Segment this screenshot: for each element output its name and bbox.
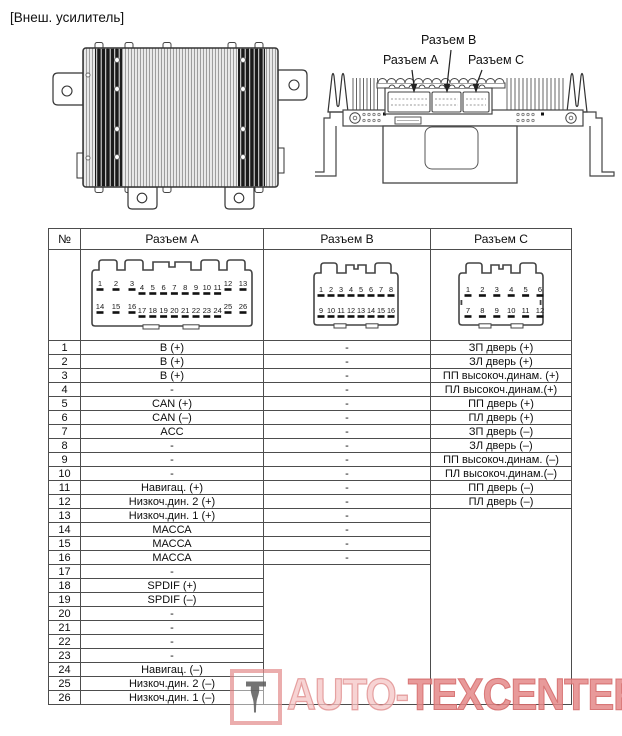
pin-c-cell: ПП дверь (+) — [431, 397, 572, 411]
header-number: № — [49, 229, 81, 250]
pin-number-cell: 7 — [49, 425, 81, 439]
svg-text:2: 2 — [329, 285, 333, 294]
pin-number-cell: 19 — [49, 593, 81, 607]
svg-text:12: 12 — [224, 279, 232, 288]
pin-b-cell: - — [264, 537, 431, 551]
svg-text:3: 3 — [130, 279, 134, 288]
svg-text:9: 9 — [495, 306, 499, 315]
pin-c-cell: ЗЛ дверь (–) — [431, 439, 572, 453]
svg-text:24: 24 — [213, 306, 221, 315]
pin-number-cell: 17 — [49, 565, 81, 579]
header-connector-a: Разъем A — [81, 229, 264, 250]
svg-text:4: 4 — [509, 285, 513, 294]
svg-text:18: 18 — [149, 306, 157, 315]
pin-number-cell: 1 — [49, 341, 81, 355]
amplifier-front-view-drawing — [44, 40, 314, 222]
svg-text:12: 12 — [347, 306, 355, 315]
header-connector-b: Разъем B — [264, 229, 431, 250]
pin-a-cell: - — [81, 565, 264, 579]
svg-text:2: 2 — [114, 279, 118, 288]
svg-text:11: 11 — [214, 283, 222, 292]
table-row: 4--ПЛ высокоч.динам.(+) — [49, 383, 572, 397]
pin-b-cell: - — [264, 523, 431, 537]
connector-a-label: Разъем A — [383, 53, 438, 67]
svg-text:23: 23 — [203, 306, 211, 315]
svg-text:20: 20 — [170, 306, 178, 315]
svg-text:1: 1 — [466, 285, 470, 294]
pin-a-cell: SPDIF (–) — [81, 593, 264, 607]
page: [Внеш. усилитель] — [0, 0, 622, 736]
pin-b-cell: - — [264, 341, 431, 355]
svg-text:6: 6 — [538, 285, 542, 294]
svg-text:5: 5 — [523, 285, 527, 294]
pin-a-cell: Навигац. (–) — [81, 663, 264, 677]
pin-number-cell: 13 — [49, 509, 81, 523]
pin-number-cell: 9 — [49, 453, 81, 467]
connector-b-pin-diagram: 12345678910111213141516 — [264, 250, 431, 341]
table-row: 9--ПП высокоч.динам. (–) — [49, 453, 572, 467]
pin-b-empty-cell — [264, 565, 431, 705]
pin-a-cell: - — [81, 607, 264, 621]
svg-text:8: 8 — [480, 306, 484, 315]
svg-text:10: 10 — [327, 306, 335, 315]
pin-a-cell: Низкоч.дин. 1 (–) — [81, 691, 264, 705]
pin-c-cell: ПЛ высокоч.динам.(+) — [431, 383, 572, 397]
pin-a-cell: SPDIF (+) — [81, 579, 264, 593]
table-header-row: № Разъем A Разъем B Разъем C — [49, 229, 572, 250]
svg-text:19: 19 — [159, 306, 167, 315]
pin-number-cell: 21 — [49, 621, 81, 635]
table-row: 2B (+)-ЗЛ дверь (+) — [49, 355, 572, 369]
pin-number-cell: 5 — [49, 397, 81, 411]
pin-c-cell: ЗЛ дверь (+) — [431, 355, 572, 369]
connector-c-pin-diagram: 123456789101112 — [431, 250, 572, 341]
pin-number-cell: 25 — [49, 677, 81, 691]
pin-a-cell: Навигац. (+) — [81, 481, 264, 495]
table-row: 5CAN (+)-ПП дверь (+) — [49, 397, 572, 411]
page-title: [Внеш. усилитель] — [10, 10, 124, 25]
pin-number-cell: 22 — [49, 635, 81, 649]
pin-number-cell: 16 — [49, 551, 81, 565]
pin-b-cell: - — [264, 425, 431, 439]
pin-number-cell: 14 — [49, 523, 81, 537]
pin-number-cell: 4 — [49, 383, 81, 397]
pin-b-cell: - — [264, 383, 431, 397]
pin-b-cell: - — [264, 439, 431, 453]
pin-a-cell: - — [81, 649, 264, 663]
svg-text:22: 22 — [192, 306, 200, 315]
svg-text:14: 14 — [367, 306, 375, 315]
svg-text:7: 7 — [379, 285, 383, 294]
pinout-table: № Разъем A Разъем B Разъем C 12345678910… — [48, 228, 572, 705]
pin-b-cell: - — [264, 397, 431, 411]
pin-b-cell: - — [264, 369, 431, 383]
pin-number-cell: 15 — [49, 537, 81, 551]
pin-a-cell: - — [81, 439, 264, 453]
svg-text:13: 13 — [239, 279, 247, 288]
table-row: 8--ЗЛ дверь (–) — [49, 439, 572, 453]
table-row: 13Низкоч.дин. 1 (+)- — [49, 509, 572, 523]
svg-text:5: 5 — [151, 283, 155, 292]
pin-b-cell: - — [264, 495, 431, 509]
connector-a-pin-diagram: 1234567891011121314151617181920212223242… — [81, 250, 264, 341]
pin-a-cell: Низкоч.дин. 2 (–) — [81, 677, 264, 691]
svg-text:16: 16 — [387, 306, 395, 315]
pin-number-cell: 20 — [49, 607, 81, 621]
pin-number-cell: 3 — [49, 369, 81, 383]
pin-a-cell: - — [81, 635, 264, 649]
svg-text:3: 3 — [339, 285, 343, 294]
pin-b-cell: - — [264, 481, 431, 495]
svg-text:10: 10 — [507, 306, 515, 315]
empty-cell — [49, 250, 81, 341]
svg-text:1: 1 — [98, 279, 102, 288]
pin-b-cell: - — [264, 355, 431, 369]
pin-number-cell: 6 — [49, 411, 81, 425]
pin-a-cell: - — [81, 467, 264, 481]
connector-diagram-row: 1234567891011121314151617181920212223242… — [49, 250, 572, 341]
pin-b-cell: - — [264, 467, 431, 481]
pin-a-cell: МАССА — [81, 551, 264, 565]
svg-text:8: 8 — [183, 283, 187, 292]
pin-number-cell: 2 — [49, 355, 81, 369]
pin-a-cell: - — [81, 383, 264, 397]
svg-text:10: 10 — [203, 283, 211, 292]
pin-c-cell: ЗП дверь (–) — [431, 425, 572, 439]
pin-b-cell: - — [264, 453, 431, 467]
pin-c-cell: ПЛ дверь (+) — [431, 411, 572, 425]
table-row: 10--ПЛ высокоч.динам.(–) — [49, 467, 572, 481]
svg-text:1: 1 — [319, 285, 323, 294]
svg-text:5: 5 — [359, 285, 363, 294]
pin-c-cell: ПЛ дверь (–) — [431, 495, 572, 509]
pin-a-cell: B (+) — [81, 341, 264, 355]
pin-b-cell: - — [264, 551, 431, 565]
svg-text:16: 16 — [128, 302, 136, 311]
pin-number-cell: 18 — [49, 579, 81, 593]
table-row: 12Низкоч.дин. 2 (+)-ПЛ дверь (–) — [49, 495, 572, 509]
svg-text:12: 12 — [536, 306, 544, 315]
pin-a-cell: - — [81, 621, 264, 635]
svg-text:7: 7 — [466, 306, 470, 315]
pin-c-cell: ПП высокоч.динам. (–) — [431, 453, 572, 467]
pin-a-cell: - — [81, 453, 264, 467]
svg-text:4: 4 — [140, 283, 144, 292]
svg-text:6: 6 — [369, 285, 373, 294]
pin-a-cell: Низкоч.дин. 1 (+) — [81, 509, 264, 523]
pin-c-cell: ПЛ высокоч.динам.(–) — [431, 467, 572, 481]
connector-c-shell: 123456789101112 — [451, 258, 551, 330]
svg-text:7: 7 — [172, 283, 176, 292]
svg-text:9: 9 — [319, 306, 323, 315]
pin-number-cell: 12 — [49, 495, 81, 509]
connector-b-shell: 12345678910111213141516 — [306, 258, 406, 330]
svg-text:15: 15 — [377, 306, 385, 315]
connector-b-label: Разъем B — [421, 33, 476, 47]
pin-a-cell: CAN (–) — [81, 411, 264, 425]
table-row: 3B (+)-ПП высокоч.динам. (+) — [49, 369, 572, 383]
svg-text:21: 21 — [181, 306, 189, 315]
pin-c-cell: ЗП дверь (+) — [431, 341, 572, 355]
svg-text:8: 8 — [389, 285, 393, 294]
pin-a-cell: B (+) — [81, 355, 264, 369]
svg-text:13: 13 — [357, 306, 365, 315]
pin-number-cell: 11 — [49, 481, 81, 495]
pin-a-cell: Низкоч.дин. 2 (+) — [81, 495, 264, 509]
svg-text:2: 2 — [480, 285, 484, 294]
pin-a-cell: МАССА — [81, 523, 264, 537]
pin-number-cell: 24 — [49, 663, 81, 677]
pin-c-cell: ПП дверь (–) — [431, 481, 572, 495]
svg-text:11: 11 — [522, 306, 530, 315]
table-row: 6CAN (–)-ПЛ дверь (+) — [49, 411, 572, 425]
header-connector-c: Разъем C — [431, 229, 572, 250]
connector-a-shell: 1234567891011121314151617181920212223242… — [87, 257, 257, 331]
table-row: 7ACC-ЗП дверь (–) — [49, 425, 572, 439]
table-row: 1B (+)-ЗП дверь (+) — [49, 341, 572, 355]
connector-c-label: Разъем C — [468, 53, 524, 67]
svg-text:26: 26 — [239, 302, 247, 311]
pin-b-cell: - — [264, 509, 431, 523]
pin-b-cell: - — [264, 411, 431, 425]
pin-number-cell: 8 — [49, 439, 81, 453]
pin-a-cell: ACC — [81, 425, 264, 439]
pin-a-cell: МАССА — [81, 537, 264, 551]
svg-text:25: 25 — [224, 302, 232, 311]
pin-c-cell: ПП высокоч.динам. (+) — [431, 369, 572, 383]
svg-text:6: 6 — [161, 283, 165, 292]
svg-text:11: 11 — [337, 306, 345, 315]
pin-number-cell: 26 — [49, 691, 81, 705]
svg-text:17: 17 — [138, 306, 146, 315]
pin-a-cell: B (+) — [81, 369, 264, 383]
svg-text:14: 14 — [96, 302, 104, 311]
svg-text:3: 3 — [495, 285, 499, 294]
pin-number-cell: 10 — [49, 467, 81, 481]
svg-text:9: 9 — [194, 283, 198, 292]
pin-number-cell: 23 — [49, 649, 81, 663]
svg-text:15: 15 — [112, 302, 120, 311]
table-row: 11Навигац. (+)-ПП дверь (–) — [49, 481, 572, 495]
pin-c-empty-cell — [431, 509, 572, 705]
pin-a-cell: CAN (+) — [81, 397, 264, 411]
svg-text:4: 4 — [349, 285, 353, 294]
